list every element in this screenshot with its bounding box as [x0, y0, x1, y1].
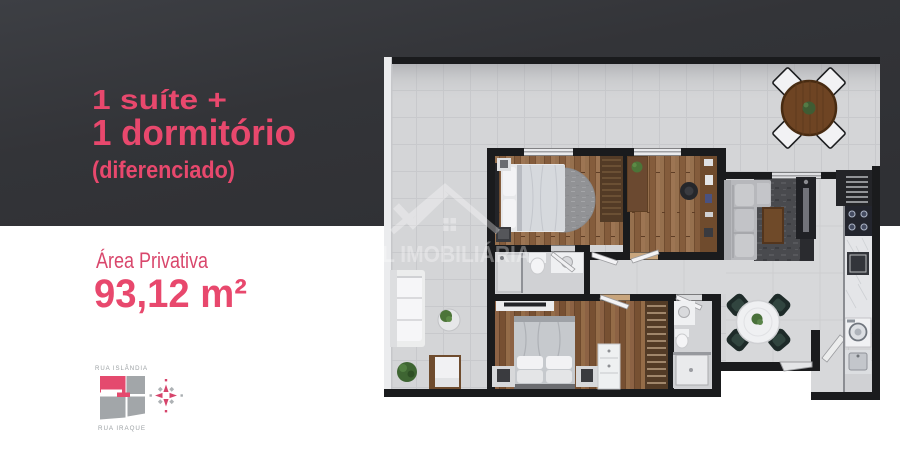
- svg-text:RUA ISLÂNDIA: RUA ISLÂNDIA: [95, 363, 148, 372]
- svg-text:RUA IRAQUE: RUA IRAQUE: [98, 425, 146, 432]
- svg-text:93,12 m²: 93,12 m²: [94, 272, 247, 316]
- svg-text:1 dormitório: 1 dormitório: [92, 112, 296, 153]
- svg-text:Área Privativa: Área Privativa: [96, 248, 209, 273]
- svg-text:VL IMOBILIÁRIA: VL IMOBILIÁRIA: [368, 240, 531, 267]
- svg-text:1 suíte +: 1 suíte +: [92, 84, 227, 115]
- svg-text:(diferenciado): (diferenciado): [92, 157, 235, 184]
